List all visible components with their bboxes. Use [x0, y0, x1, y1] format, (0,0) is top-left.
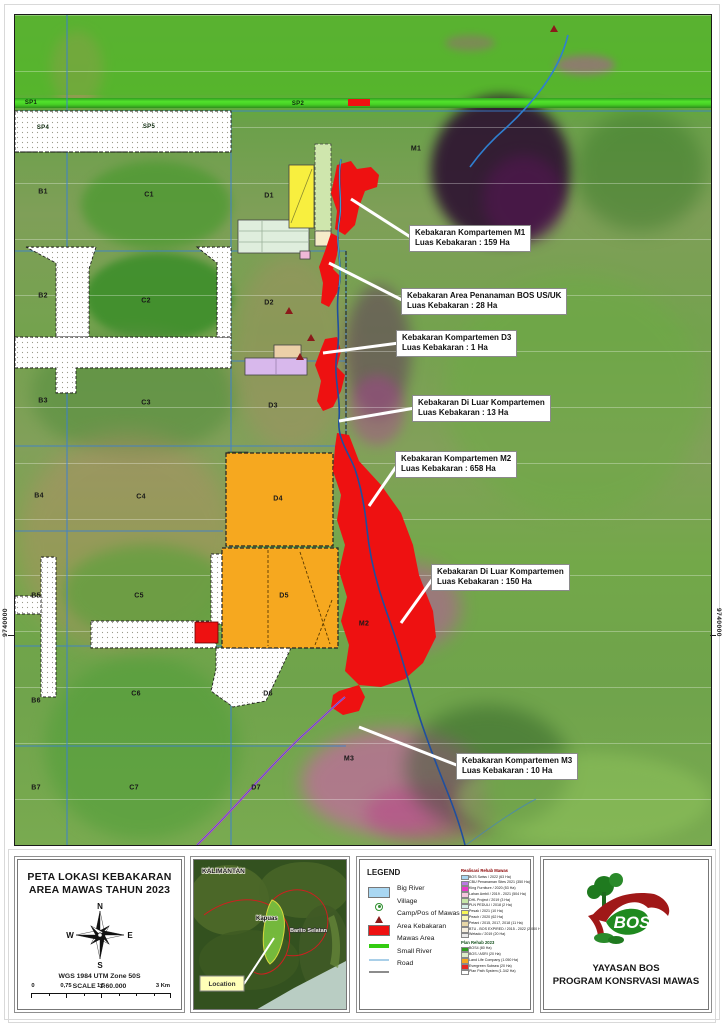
- fire-callout-5: Kebakaran Kompartemen M2Luas Kebakaran :…: [395, 451, 517, 478]
- compass-n: N: [97, 902, 103, 911]
- rehab-legend-item-label: CBU Penanaman Sites 2021 (350 Ha): [469, 880, 530, 884]
- rehab-legend-item: Wetado / 2019 (20 Ha): [461, 932, 534, 938]
- legend-swatch-icon: [461, 933, 469, 939]
- legend-item-label: Area Kebakaran: [397, 923, 446, 930]
- scalebar-label-3: 3 Km: [156, 983, 170, 989]
- rehab-legend-title: Realisasi Rehab Mawas: [461, 868, 534, 873]
- legend-item-label: Village: [397, 898, 417, 905]
- legend-item-small-river: Small River: [367, 947, 459, 960]
- map-title-line1: PETA LOKASI KEBAKARAN: [18, 871, 181, 884]
- legend-item-camp-pos-of-mawas: Camp/Pos of Mawas: [367, 909, 459, 922]
- rehab-legend-item-label: King Furniture / 2020 (53 Ha): [469, 886, 516, 890]
- org-name-line1: YAYASAN BOS: [544, 962, 708, 975]
- title-panel: PETA LOKASI KEBAKARAN AREA MAWAS TAHUN 2…: [14, 856, 185, 1013]
- legend-rehab-column: Realisasi Rehab MawasBOS Swiss / 2022 (6…: [461, 868, 534, 975]
- rehab-legend-item-label: Petani / 2015, 2017, 2018 (11 Ha): [469, 921, 523, 925]
- main-map: SP1SP2SP4SP5B1B2B3B4B5B6B7C1C2C3C4C5C6C7…: [14, 14, 712, 846]
- inset-location-label: Location: [208, 981, 235, 988]
- legend-item-village: Village: [367, 897, 459, 910]
- legend-item-mawas-area: Mawas Area: [367, 934, 459, 947]
- fire-callout-6: Kebakaran Di Luar KompartemenLuas Kebaka…: [431, 564, 570, 591]
- rehab-legend-item-label: DHL Project / 2019 (3 Ha): [469, 898, 510, 902]
- legend-item-big-river: Big River: [367, 884, 459, 897]
- edge-coordinate-left: 9740000: [2, 608, 9, 637]
- legend-swatch-icon: [369, 971, 389, 973]
- plan-legend-item-label: Land Life Company (1.050 Ha): [469, 958, 518, 962]
- compass-e: E: [127, 931, 133, 940]
- fire-callout-7: Kebakaran Kompartemen M3Luas Kebakaran :…: [456, 753, 578, 780]
- fire-callout-3: Kebakaran Kompartemen D3Luas Kebakaran :…: [396, 330, 517, 357]
- edge-tick-left: [8, 635, 14, 636]
- rehab-legend-item-label: BOS Swiss / 2022 (63 Ha): [469, 875, 511, 879]
- rehab-legend-item-label: Peach / 2020 (62 Ha): [469, 915, 503, 919]
- rehab-legend-item-label: BTU - BOS EXPIRED / 2015 - 2022 (2.000 H…: [469, 927, 544, 931]
- plan-legend-item-label: BOS / ASRI (20 Ha): [469, 952, 501, 956]
- fire-callout-1: Kebakaran Kompartemen M1Luas Kebakaran :…: [409, 225, 531, 252]
- compass-rose: N E S W: [62, 899, 138, 971]
- legend-items: Big RiverVillageCamp/Pos of MawasArea Ke…: [367, 884, 459, 972]
- plan-legend-item-label: Evergreen Subsea (20 Ha): [469, 964, 512, 968]
- scalebar-label-2: 1,5: [97, 983, 105, 989]
- legend-item-label: Big River: [397, 885, 425, 892]
- rehab-legend-item-label: Pesak / 2021 (10 Ha): [469, 909, 503, 913]
- compass-w: W: [66, 931, 74, 940]
- legend-swatch-icon: [461, 970, 469, 976]
- fire-callout-4: Kebakaran Di Luar KompartemenLuas Kebaka…: [412, 395, 551, 422]
- rehab-legend-item-label: Lahan Ambil / 2019 - 2021 (504 Ha): [469, 892, 526, 896]
- legend-item-label: Mawas Area: [397, 935, 434, 942]
- inset-map-panel: KALIMANTAN Kapuas Barito Selatan Locatio…: [190, 856, 350, 1013]
- inset-region-label: KALIMANTAN: [202, 868, 245, 875]
- datum-label: WGS 1984 UTM Zone 50S: [18, 973, 181, 980]
- rehab-legend-item-label: Wetado / 2019 (20 Ha): [469, 932, 505, 936]
- legend-item-road: Road: [367, 959, 459, 972]
- inset-kapuas-label: Kapuas: [256, 916, 278, 922]
- logo-panel: BOS YAYASAN BOS PROGRAM KONSRVASI MAWAS: [540, 856, 712, 1013]
- bos-logo: BOS: [574, 870, 678, 948]
- map-callouts: Kebakaran Kompartemen M1Luas Kebakaran :…: [15, 15, 711, 845]
- inset-map: KALIMANTAN Kapuas Barito Selatan Locatio…: [194, 860, 347, 1010]
- org-name-line2: PROGRAM KONSRVASI MAWAS: [544, 975, 708, 988]
- map-title-line2: AREA MAWAS TAHUN 2023: [18, 884, 181, 897]
- edge-coordinate-right: 9740000: [715, 608, 722, 637]
- compass-s: S: [97, 961, 103, 970]
- plan-legend-item-label: Plan Path System (1.342 Ha): [469, 969, 516, 973]
- plan-legend-title: Plan Rehab 2023: [461, 940, 534, 945]
- fire-callout-2: Kebakaran Area Penanaman BOS US/UKLuas K…: [401, 288, 567, 315]
- legend-item-area-kebakaran: Area Kebakaran: [367, 922, 459, 935]
- scale-bar: 0 0,75 1,5 3 Km: [31, 984, 171, 1000]
- legend-item-label: Small River: [397, 948, 432, 955]
- scalebar-label-0: 0: [31, 983, 34, 989]
- plan-legend-item: Plan Path System (1.342 Ha): [461, 969, 534, 975]
- bos-logo-text: BOS: [614, 913, 652, 932]
- inset-barito-label: Barito Selatan: [290, 928, 328, 934]
- legend-item-label: Camp/Pos of Mawas: [397, 910, 460, 917]
- rehab-legend-item-label: PLN PEDULI / 2018 (2 Ha): [469, 903, 512, 907]
- legend-panel: LEGEND Big RiverVillageCamp/Pos of Mawas…: [356, 856, 534, 1013]
- plan-legend-item-label: BOS4 (80 Ha): [469, 946, 492, 950]
- scalebar-label-1: 0,75: [60, 983, 71, 989]
- legend-item-label: Road: [397, 960, 413, 967]
